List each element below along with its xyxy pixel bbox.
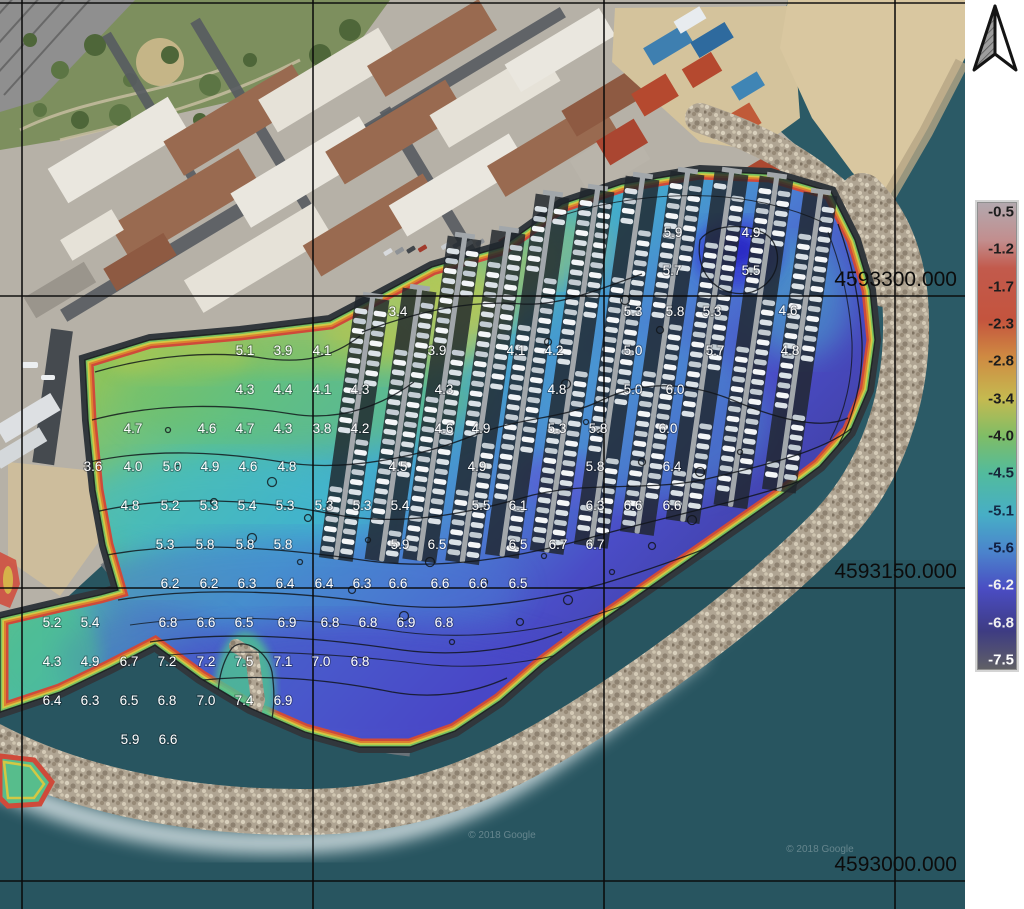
depth-sounding-label: 5.8 [586, 459, 605, 474]
depth-sounding-label: 5.3 [276, 498, 295, 513]
depth-sounding-label: 6.5 [120, 693, 139, 708]
depth-sounding-label: 6.8 [359, 615, 378, 630]
depth-sounding-label: 4.1 [507, 343, 526, 358]
depth-sounding-label: 4.3 [435, 382, 454, 397]
depth-sounding-label: 4.9 [468, 459, 487, 474]
depth-sounding-label: 4.8 [781, 343, 800, 358]
depth-sounding-label: 3.8 [313, 421, 332, 436]
depth-sounding-label: 6.0 [666, 382, 685, 397]
depth-sounding-label: 4.9 [472, 421, 491, 436]
depth-sounding-label: 6.8 [158, 693, 177, 708]
depth-sounding-label: 4.6 [239, 459, 258, 474]
depth-sounding-label: 6.0 [659, 421, 678, 436]
bathymetric-survey-figure: © 2018 Google© 2018 Google 5.94.95.75.53… [0, 0, 1024, 909]
depth-sounding-label: 5.3 [548, 421, 567, 436]
depth-sounding-label: 6.7 [120, 654, 139, 669]
depth-sounding-label: 5.8 [274, 537, 293, 552]
depth-sounding-label: 5.7 [706, 343, 725, 358]
depth-sounding-label: 7.0 [312, 654, 331, 669]
depth-sounding-label: 5.3 [200, 498, 219, 513]
northing-label: 4593000.000 [834, 853, 957, 876]
depth-sounding-label: 4.6 [198, 421, 217, 436]
depth-sounding-label: 6.3 [238, 576, 257, 591]
depth-sounding-label: 4.8 [121, 498, 140, 513]
depth-sounding-label: 7.0 [197, 693, 216, 708]
colorbar-tick-label: -3.4 [988, 391, 1014, 406]
depth-sounding-label: 7.2 [158, 654, 177, 669]
depth-sounding-label: 6.7 [549, 537, 568, 552]
depth-sounding-label: 6.6 [469, 576, 488, 591]
depth-sounding-label: 6.9 [397, 615, 416, 630]
depth-sounding-label: 6.9 [274, 693, 293, 708]
depth-sounding-label: 6.6 [197, 615, 216, 630]
tree [199, 74, 221, 96]
depth-sounding-label: 6.2 [161, 576, 180, 591]
depth-sounding-label: 3.9 [274, 343, 293, 358]
depth-sounding-label: 6.6 [663, 498, 682, 513]
depth-sounding-label: 6.8 [435, 615, 454, 630]
north-arrow-icon [969, 2, 1021, 80]
tree [71, 111, 89, 129]
depth-sounding-label: 5.8 [666, 304, 685, 319]
depth-sounding-label: 4.3 [236, 382, 255, 397]
depth-sounding-label: 5.8 [196, 537, 215, 552]
colorbar-tick-label: -2.3 [988, 317, 1014, 332]
depth-sounding-label: 5.3 [156, 537, 175, 552]
map-canvas: © 2018 Google© 2018 Google 5.94.95.75.53… [0, 0, 965, 909]
depth-sounding-label: 6.3 [81, 693, 100, 708]
depth-sounding-label: 6.3 [586, 498, 605, 513]
colorbar-tick-label: -5.6 [988, 541, 1014, 556]
depth-sounding-label: 4.2 [351, 421, 370, 436]
depth-sounding-label: 4.7 [124, 421, 143, 436]
depth-sounding-label: 4.9 [201, 459, 220, 474]
tree [51, 61, 69, 79]
colorbar-tick-label: -1.2 [988, 242, 1014, 257]
colorbar-tick-label: -6.2 [988, 578, 1014, 593]
depth-sounding-label: 4.8 [278, 459, 297, 474]
depth-sounding-label: 6.7 [586, 537, 605, 552]
depth-sounding-label: 5.3 [703, 304, 722, 319]
depth-sounding-label: 6.5 [509, 576, 528, 591]
depth-sounding-label: 6.5 [509, 537, 528, 552]
depth-sounding-label: 4.0 [124, 459, 143, 474]
depth-sounding-label: 6.5 [428, 537, 447, 552]
depth-sounding-label: 4.3 [351, 382, 370, 397]
depth-sounding-label: 5.3 [353, 498, 372, 513]
colorbar-tick-label: -2.8 [988, 354, 1014, 369]
depth-sounding-label: 5.0 [163, 459, 182, 474]
depth-sounding-label: 7.4 [235, 693, 254, 708]
colorbar-tick-label: -4.5 [988, 466, 1014, 481]
depth-sounding-label: 5.5 [472, 498, 491, 513]
depth-sounding-label: 5.3 [624, 304, 643, 319]
depth-sounding-label: 4.1 [313, 343, 332, 358]
depth-colorbar: -0.5-1.2-1.7-2.3-2.8-3.4-4.0-4.5-5.1-5.6… [977, 202, 1017, 670]
depth-sounding-label: 4.6 [435, 421, 454, 436]
depth-sounding-label: 4.2 [545, 343, 564, 358]
depth-sounding-label: 5.1 [236, 343, 255, 358]
depth-sounding-label: 4.9 [742, 225, 761, 240]
depth-sounding-label: 4.3 [274, 421, 293, 436]
northing-label: 4593300.000 [834, 268, 957, 291]
depth-sounding-label: 4.6 [779, 303, 798, 318]
depth-sounding-label: 5.7 [663, 263, 682, 278]
side-panel: -0.5-1.2-1.7-2.3-2.8-3.4-4.0-4.5-5.1-5.6… [965, 0, 1024, 909]
tree [339, 19, 361, 41]
depth-sounding-label: 5.0 [624, 343, 643, 358]
depth-sounding-label: 4.4 [274, 382, 293, 397]
depth-sounding-label: 6.8 [159, 615, 178, 630]
tree [161, 46, 179, 64]
depth-sounding-label: 6.6 [159, 732, 178, 747]
tree [243, 53, 257, 67]
colorbar-tick-label: -6.8 [988, 615, 1014, 630]
depth-sounding-label: 6.4 [43, 693, 62, 708]
depth-sounding-label: 6.6 [431, 576, 450, 591]
depth-sounding-label: 5.9 [121, 732, 140, 747]
colorbar-tick-label: -4.0 [988, 429, 1014, 444]
depth-sounding-label: 6.8 [351, 654, 370, 669]
depth-sounding-label: 7.1 [274, 654, 293, 669]
depth-sounding-label: 5.2 [161, 498, 180, 513]
depth-sounding-label: 5.2 [43, 615, 62, 630]
depth-sounding-label: 6.4 [276, 576, 295, 591]
depth-sounding-label: 6.6 [624, 498, 643, 513]
depth-sounding-label: 6.4 [663, 459, 682, 474]
depth-sounding-label: 4.1 [313, 382, 332, 397]
colorbar-tick-label: -5.1 [988, 503, 1014, 518]
depth-sounding-label: 4.8 [548, 382, 567, 397]
tree [33, 103, 47, 117]
depth-sounding-label: 6.8 [321, 615, 340, 630]
depth-sounding-label: 4.5 [389, 459, 408, 474]
depth-sounding-label: 3.6 [84, 459, 103, 474]
depth-sounding-label: 5.4 [81, 615, 100, 630]
depth-sounding-label: 6.6 [389, 576, 408, 591]
depth-sounding-label: 5.3 [315, 498, 334, 513]
depth-sounding-label: 3.4 [389, 304, 408, 319]
depth-sounding-label: 5.4 [238, 498, 257, 513]
depth-sounding-label: 4.9 [81, 654, 100, 669]
depth-sounding-label: 6.3 [353, 576, 372, 591]
tree [23, 33, 37, 47]
depth-sounding-label: 7.2 [197, 654, 216, 669]
northing-label: 4593150.000 [834, 560, 957, 583]
depth-sounding-label: 4.7 [236, 421, 255, 436]
colorbar-tick-label: -1.7 [988, 279, 1014, 294]
depth-sounding-label: 5.9 [391, 537, 410, 552]
depth-sounding-label: 3.9 [428, 343, 447, 358]
depth-sounding-label: 6.1 [509, 498, 528, 513]
imagery-watermark: © 2018 Google [468, 830, 536, 841]
depth-sounding-label: 5.4 [391, 498, 410, 513]
colorbar-tick-label: -7.5 [988, 653, 1014, 668]
depth-sounding-label: 6.9 [278, 615, 297, 630]
depth-sounding-label: 6.5 [235, 615, 254, 630]
depth-sounding-label: 5.5 [742, 263, 761, 278]
depth-sounding-label: 6.2 [200, 576, 219, 591]
depth-sounding-label: 6.4 [315, 576, 334, 591]
colorbar-tick-label: -0.5 [988, 205, 1014, 220]
depth-sounding-label: 7.5 [235, 654, 254, 669]
depth-sounding-label: 5.8 [589, 421, 608, 436]
depth-sounding-label: 5.9 [664, 225, 683, 240]
depth-sounding-label: 4.3 [43, 654, 62, 669]
depth-sounding-label: 5.0 [624, 382, 643, 397]
depth-sounding-label: 5.8 [236, 537, 255, 552]
